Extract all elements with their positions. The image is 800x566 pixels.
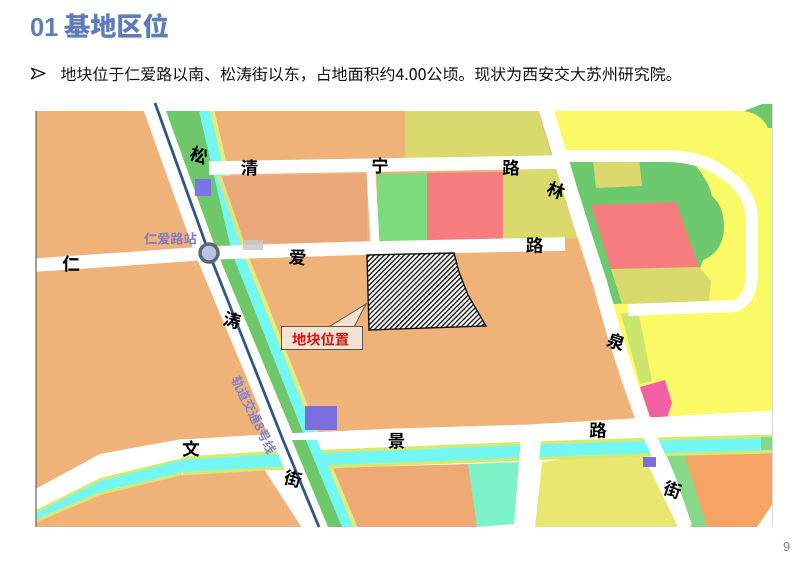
svg-text:9: 9 bbox=[783, 539, 790, 554]
svg-text:01: 01 bbox=[30, 14, 58, 42]
